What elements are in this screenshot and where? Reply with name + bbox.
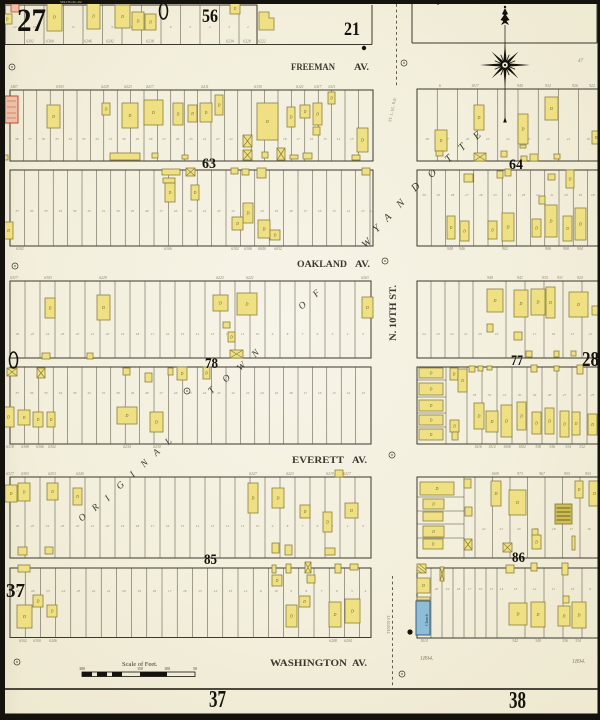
svg-text:D: D: [594, 136, 598, 140]
svg-text:37: 37: [6, 580, 25, 602]
svg-text:3: 3: [362, 332, 364, 336]
svg-text:D: D: [151, 110, 155, 115]
svg-text:D: D: [429, 433, 433, 437]
svg-text:1894.: 1894.: [572, 658, 586, 665]
svg-text:17: 17: [468, 587, 472, 591]
svg-text:D: D: [6, 415, 10, 420]
svg-text:D: D: [302, 600, 306, 604]
svg-text:25: 25: [31, 524, 35, 528]
svg-text:D: D: [154, 420, 158, 425]
svg-text:D: D: [120, 15, 124, 19]
svg-text:34: 34: [59, 391, 63, 395]
svg-text:21: 21: [344, 19, 360, 40]
svg-text:26: 26: [174, 209, 178, 213]
svg-text:19: 19: [579, 193, 583, 197]
svg-text:6234: 6234: [123, 445, 131, 449]
svg-text:32: 32: [88, 209, 92, 213]
svg-text:9: 9: [589, 587, 591, 591]
svg-text:6208: 6208: [329, 639, 337, 643]
svg-text:22: 22: [92, 589, 96, 593]
svg-text:6246: 6246: [49, 639, 57, 643]
svg-text:17: 17: [168, 589, 172, 593]
svg-text:D: D: [429, 388, 433, 392]
svg-text:931: 931: [557, 276, 563, 280]
svg-text:6246: 6246: [84, 40, 92, 44]
svg-text:16: 16: [552, 332, 556, 336]
svg-text:D: D: [449, 226, 453, 230]
svg-text:6228: 6228: [243, 40, 251, 44]
svg-text:D: D: [576, 302, 580, 307]
svg-text:D: D: [315, 113, 319, 117]
svg-text:D: D: [439, 139, 443, 143]
svg-text:27: 27: [17, 3, 46, 39]
svg-text:D: D: [235, 222, 239, 226]
svg-text:21: 21: [567, 137, 571, 141]
svg-text:24: 24: [46, 524, 50, 528]
svg-text:932: 932: [545, 84, 551, 88]
svg-text:18: 18: [289, 209, 293, 213]
svg-text:25: 25: [189, 137, 193, 141]
svg-text:34: 34: [59, 209, 63, 213]
svg-text:D: D: [506, 225, 510, 230]
svg-text:D: D: [519, 415, 523, 419]
svg-text:D: D: [504, 419, 508, 424]
svg-text:D: D: [360, 138, 364, 143]
svg-text:30: 30: [422, 193, 426, 197]
svg-text:D: D: [217, 104, 221, 108]
svg-text:4: 4: [347, 332, 349, 336]
svg-text:6303: 6303: [21, 472, 29, 476]
svg-text:6: 6: [336, 589, 338, 593]
svg-text:20: 20: [106, 524, 110, 528]
svg-text:D: D: [276, 496, 280, 501]
svg-text:D: D: [477, 115, 481, 120]
svg-text:6229: 6229: [101, 85, 109, 89]
svg-text:9: 9: [111, 25, 113, 29]
svg-text:20: 20: [517, 527, 521, 531]
svg-text:D: D: [548, 300, 552, 305]
svg-text:37: 37: [16, 391, 20, 395]
svg-text:D: D: [549, 106, 553, 111]
svg-text:32: 32: [95, 137, 99, 141]
svg-text:26: 26: [479, 193, 483, 197]
svg-text:25: 25: [493, 193, 497, 197]
svg-text:64: 64: [509, 157, 523, 173]
svg-text:18: 18: [591, 193, 595, 197]
svg-text:D: D: [246, 211, 250, 216]
svg-text:1012: 1012: [488, 445, 496, 449]
svg-text:1014: 1014: [420, 639, 428, 643]
svg-text:6317: 6317: [10, 276, 19, 280]
svg-text:1407: 1407: [10, 85, 19, 89]
svg-text:5: 5: [332, 332, 334, 336]
svg-text:35: 35: [44, 391, 48, 395]
svg-text:D: D: [568, 178, 572, 182]
svg-text:940: 940: [517, 84, 523, 88]
svg-text:20: 20: [260, 391, 264, 395]
svg-text:22: 22: [232, 209, 236, 213]
svg-text:D: D: [562, 423, 566, 427]
svg-text:19: 19: [495, 332, 499, 336]
svg-text:29: 29: [136, 137, 140, 141]
svg-text:D: D: [536, 612, 540, 617]
svg-text:D: D: [493, 298, 497, 303]
svg-text:20: 20: [587, 137, 591, 141]
svg-text:336: 336: [549, 445, 555, 449]
svg-text:21: 21: [246, 391, 250, 395]
svg-text:13: 13: [229, 589, 233, 593]
svg-text:D: D: [577, 613, 581, 618]
svg-text:D: D: [275, 579, 279, 583]
svg-text:D: D: [148, 21, 152, 25]
svg-text:9: 9: [290, 589, 292, 593]
svg-text:12: 12: [226, 524, 230, 528]
svg-text:26: 26: [16, 524, 20, 528]
svg-text:14: 14: [500, 587, 504, 591]
svg-text:13: 13: [361, 209, 365, 213]
svg-text:26: 26: [174, 391, 178, 395]
svg-text:25: 25: [188, 209, 192, 213]
svg-text:18: 18: [552, 527, 556, 531]
svg-text:18: 18: [153, 589, 157, 593]
svg-text:7: 7: [321, 589, 323, 593]
svg-text:6106: 6106: [164, 247, 172, 251]
svg-text:D: D: [333, 612, 337, 617]
svg-text:6219: 6219: [326, 472, 334, 476]
svg-text:14: 14: [196, 332, 200, 336]
svg-text:14: 14: [214, 589, 218, 593]
svg-text:922: 922: [589, 84, 595, 88]
svg-text:6: 6: [317, 332, 319, 336]
svg-text:D: D: [515, 500, 519, 505]
svg-text:26: 26: [578, 393, 582, 397]
svg-text:22: 22: [76, 332, 80, 336]
svg-text:342: 342: [512, 639, 518, 643]
svg-text:6308: 6308: [21, 445, 29, 449]
svg-text:13: 13: [211, 524, 215, 528]
svg-text:6317: 6317: [6, 472, 15, 476]
svg-text:21: 21: [500, 527, 504, 531]
svg-text:D: D: [350, 609, 354, 614]
svg-text:20: 20: [435, 587, 439, 591]
svg-text:D: D: [5, 18, 9, 22]
svg-text:6102: 6102: [231, 247, 239, 251]
svg-text:D: D: [549, 219, 553, 224]
svg-text:336: 336: [562, 639, 568, 643]
svg-text:20: 20: [564, 193, 568, 197]
svg-text:15: 15: [181, 332, 185, 336]
svg-text:23: 23: [522, 193, 526, 197]
svg-text:16: 16: [318, 209, 322, 213]
svg-text:D: D: [101, 305, 105, 310]
svg-text:77: 77: [511, 353, 523, 369]
svg-text:6102: 6102: [16, 247, 24, 251]
svg-text:19: 19: [446, 587, 450, 591]
svg-text:21: 21: [91, 332, 95, 336]
svg-text:63: 63: [202, 156, 216, 172]
svg-text:85: 85: [204, 552, 217, 568]
svg-text:29: 29: [131, 209, 135, 213]
svg-text:6223: 6223: [124, 85, 132, 89]
svg-text:20: 20: [106, 332, 110, 336]
svg-text:17: 17: [304, 209, 308, 213]
svg-text:338: 338: [535, 445, 541, 449]
svg-text:16: 16: [479, 587, 483, 591]
svg-text:D: D: [431, 503, 435, 507]
svg-text:D: D: [265, 119, 269, 124]
svg-text:D: D: [431, 543, 435, 547]
svg-text:26: 26: [466, 137, 470, 141]
svg-text:946: 946: [459, 247, 465, 251]
svg-text:33: 33: [73, 209, 77, 213]
svg-text:6223: 6223: [216, 276, 224, 280]
svg-text:16: 16: [587, 527, 591, 531]
svg-text:6227: 6227: [249, 472, 258, 476]
svg-text:D: D: [6, 229, 10, 233]
svg-text:15: 15: [323, 137, 327, 141]
svg-text:27: 27: [162, 137, 166, 141]
svg-text:23: 23: [217, 391, 221, 395]
svg-text:334: 334: [565, 445, 571, 449]
svg-text:30: 30: [518, 393, 522, 397]
svg-text:16: 16: [166, 332, 170, 336]
svg-text:24: 24: [422, 332, 426, 336]
svg-text:300: 300: [79, 667, 85, 671]
svg-text:332: 332: [579, 445, 585, 449]
svg-text:32: 32: [488, 393, 492, 397]
svg-text:1008: 1008: [503, 445, 511, 449]
svg-text:6223: 6223: [286, 472, 294, 476]
svg-text:D: D: [574, 422, 578, 426]
svg-text:D: D: [168, 191, 172, 195]
svg-text:37: 37: [16, 209, 20, 213]
svg-text:FREEMAN: FREEMAN: [291, 63, 335, 73]
svg-text:1016: 1016: [474, 445, 482, 449]
svg-text:50: 50: [193, 667, 197, 671]
svg-text:24: 24: [203, 209, 207, 213]
svg-text:935: 935: [542, 276, 548, 280]
svg-text:34: 34: [69, 137, 73, 141]
svg-text:D: D: [349, 508, 353, 513]
svg-text:33: 33: [73, 391, 77, 395]
svg-text:26: 26: [16, 332, 20, 336]
svg-text:18: 18: [457, 587, 461, 591]
svg-text:24: 24: [62, 589, 66, 593]
svg-text:D: D: [22, 491, 26, 495]
svg-text:4: 4: [364, 589, 366, 593]
svg-text:D: D: [289, 116, 293, 120]
svg-text:953: 953: [585, 472, 591, 476]
svg-text:56: 56: [202, 6, 218, 27]
svg-text:D: D: [104, 108, 108, 112]
svg-text:24: 24: [203, 391, 207, 395]
svg-text:334: 334: [575, 639, 581, 643]
svg-text:D: D: [245, 302, 249, 307]
svg-text:D: D: [36, 418, 40, 422]
svg-text:11: 11: [259, 589, 262, 593]
svg-text:31: 31: [109, 137, 113, 141]
svg-text:D: D: [429, 372, 433, 376]
svg-text:37: 37: [209, 687, 226, 713]
svg-text:955: 955: [564, 472, 570, 476]
svg-text:6221: 6221: [246, 276, 254, 280]
svg-text:D: D: [128, 113, 132, 118]
svg-text:19: 19: [121, 332, 125, 336]
svg-text:D: D: [51, 115, 55, 119]
svg-text:D: D: [490, 229, 494, 233]
svg-text:23: 23: [77, 589, 81, 593]
svg-text:30: 30: [116, 391, 120, 395]
svg-text:D: D: [125, 413, 129, 418]
svg-text:908: 908: [563, 247, 569, 251]
svg-text:925: 925: [577, 276, 583, 280]
svg-text:29: 29: [437, 193, 441, 197]
svg-text:D: D: [452, 373, 456, 377]
svg-text:TENTH ST.: TENTH ST.: [386, 615, 391, 634]
svg-text:31: 31: [102, 209, 106, 213]
svg-text:6238: 6238: [146, 40, 154, 44]
svg-text:38: 38: [15, 137, 19, 141]
svg-text:D: D: [22, 614, 26, 619]
svg-text:D: D: [50, 610, 54, 614]
svg-text:150: 150: [137, 667, 143, 671]
svg-text:6: 6: [170, 25, 172, 29]
svg-text:20: 20: [122, 589, 126, 593]
svg-text:D: D: [462, 230, 466, 234]
svg-text:AV.: AV.: [352, 659, 367, 669]
svg-text:13: 13: [514, 587, 518, 591]
svg-text:28: 28: [145, 209, 149, 213]
svg-text:D: D: [578, 222, 582, 227]
svg-text:16: 16: [183, 589, 187, 593]
svg-text:1017: 1017: [471, 84, 480, 88]
svg-text:AV.: AV.: [352, 456, 367, 466]
svg-text:36: 36: [30, 209, 34, 213]
svg-text:D: D: [562, 614, 566, 619]
svg-text:D: D: [50, 490, 54, 494]
svg-text:D: D: [477, 414, 481, 419]
svg-text:28: 28: [145, 391, 149, 395]
svg-text:6245: 6245: [76, 472, 84, 476]
svg-text:D: D: [325, 521, 329, 525]
svg-text:D: D: [9, 492, 13, 496]
svg-text:36: 36: [42, 137, 46, 141]
svg-text:17: 17: [533, 332, 537, 336]
svg-text:37: 37: [28, 137, 32, 141]
svg-text:906: 906: [545, 247, 551, 251]
svg-text:29: 29: [533, 393, 537, 397]
svg-text:6234: 6234: [226, 40, 234, 44]
svg-text:30: 30: [116, 209, 120, 213]
svg-text:1009: 1009: [491, 472, 499, 476]
svg-text:15: 15: [332, 209, 336, 213]
svg-text:11: 11: [72, 25, 75, 29]
svg-text:18: 18: [136, 524, 140, 528]
svg-text:D: D: [534, 422, 538, 426]
svg-text:20: 20: [478, 332, 482, 336]
svg-text:1002: 1002: [518, 445, 526, 449]
svg-text:D: D: [36, 600, 40, 604]
svg-text:N. 10TH ST.: N. 10TH ST.: [389, 285, 399, 341]
svg-text:D: D: [460, 379, 464, 383]
svg-text:27: 27: [465, 193, 469, 197]
svg-text:D: D: [193, 191, 197, 195]
svg-text:10: 10: [256, 524, 260, 528]
svg-text:904: 904: [577, 247, 583, 251]
svg-text:23: 23: [61, 332, 65, 336]
svg-text:3: 3: [362, 524, 364, 528]
svg-text:6229: 6229: [99, 276, 107, 280]
svg-text:D: D: [289, 614, 293, 619]
svg-text:28: 28: [149, 137, 153, 141]
svg-text:6211: 6211: [201, 85, 208, 89]
svg-text:6106: 6106: [244, 247, 252, 251]
svg-text:31: 31: [503, 393, 507, 397]
svg-text:13: 13: [350, 137, 354, 141]
svg-text:WASHINGTON: WASHINGTON: [270, 659, 347, 669]
svg-text:Church: Church: [424, 614, 429, 626]
svg-text:19: 19: [275, 391, 279, 395]
svg-text:D: D: [303, 510, 307, 514]
svg-text:6: 6: [317, 524, 319, 528]
svg-text:8: 8: [287, 524, 289, 528]
svg-text:22: 22: [450, 332, 454, 336]
svg-text:19: 19: [275, 209, 279, 213]
svg-text:35: 35: [44, 209, 48, 213]
svg-text:D: D: [329, 97, 333, 101]
svg-text:24: 24: [203, 137, 207, 141]
svg-text:19: 19: [138, 589, 142, 593]
svg-text:D: D: [204, 111, 208, 115]
svg-text:14: 14: [347, 209, 351, 213]
svg-text:16: 16: [166, 524, 170, 528]
svg-text:6300: 6300: [46, 40, 54, 44]
svg-text:30: 30: [122, 137, 126, 141]
svg-text:6303: 6303: [44, 276, 52, 280]
svg-text:6242: 6242: [106, 40, 114, 44]
svg-text:5: 5: [351, 589, 353, 593]
svg-text:22: 22: [547, 137, 551, 141]
svg-text:6302: 6302: [48, 445, 56, 449]
svg-text:D: D: [251, 496, 255, 501]
svg-text:D: D: [136, 20, 140, 24]
svg-text:21: 21: [91, 524, 95, 528]
svg-text:13: 13: [362, 391, 366, 395]
svg-text:35: 35: [55, 137, 59, 141]
svg-text:6302: 6302: [19, 639, 27, 643]
svg-text:26: 26: [31, 589, 35, 593]
svg-text:19: 19: [121, 524, 125, 528]
svg-text:D: D: [49, 418, 53, 422]
svg-text:27: 27: [563, 393, 567, 397]
svg-text:8: 8: [306, 589, 308, 593]
svg-text:23: 23: [436, 332, 440, 336]
svg-text:926: 926: [572, 84, 578, 88]
svg-text:22: 22: [76, 524, 80, 528]
svg-text:D: D: [48, 307, 52, 311]
svg-text:22: 22: [229, 137, 233, 141]
svg-text:38: 38: [509, 688, 526, 714]
svg-text:D: D: [431, 530, 435, 534]
svg-text:17: 17: [296, 137, 300, 141]
svg-text:18: 18: [283, 137, 287, 141]
svg-text:27: 27: [160, 391, 164, 395]
svg-text:D: D: [180, 372, 184, 376]
svg-text:D: D: [273, 234, 277, 238]
svg-text:10: 10: [274, 589, 278, 593]
svg-text:941: 941: [517, 276, 523, 280]
svg-text:2: 2: [247, 25, 249, 29]
